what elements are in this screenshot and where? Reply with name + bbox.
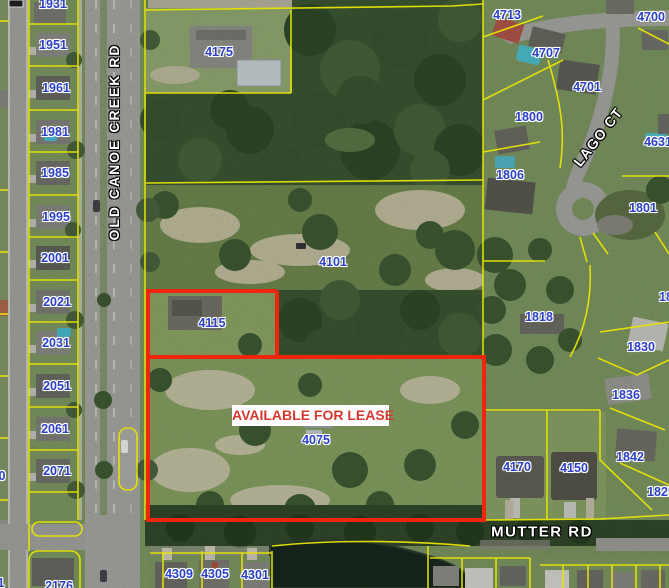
parcel-label-1951: 1951	[39, 38, 67, 52]
parcel-label-4175: 4175	[205, 45, 233, 59]
aerial-parcel-map: 1931195119611981198519952001202120312051…	[0, 0, 669, 588]
parcel-label-4713: 4713	[493, 8, 521, 22]
parcel-label-4301: 4301	[241, 568, 269, 582]
parcel-label-1836: 1836	[612, 388, 640, 402]
parcel-label-4305: 4305	[201, 567, 229, 581]
parcel-label-4150: 4150	[560, 461, 588, 475]
parcel-label-4700: 4700	[637, 10, 665, 24]
parcel-label-4631: 4631	[644, 135, 669, 149]
parcel-label-2021: 2021	[43, 295, 71, 309]
parcel-label-1825: 1825	[647, 485, 669, 499]
road-label-lago-ct: LAGO CT	[570, 104, 626, 169]
parcel-label-2061: 2061	[41, 422, 69, 436]
parcel-label-1931: 1931	[39, 0, 67, 11]
parcel-label-2051: 2051	[43, 379, 71, 393]
parcel-label-4075: 4075	[302, 433, 330, 447]
parcel-label-2176: 2176	[45, 579, 73, 588]
available-for-lease-banner: AVAILABLE FOR LEASE	[232, 405, 389, 426]
parcel-label-1981: 1981	[41, 125, 69, 139]
parcel-label-4115: 4115	[198, 316, 225, 330]
parcel-label-4707: 4707	[532, 46, 560, 60]
parcel-label-18: 18	[659, 290, 669, 304]
parcel-label-1800: 1800	[515, 110, 543, 124]
parcel-label-2071: 2071	[43, 464, 71, 478]
parcel-label-1818: 1818	[525, 310, 553, 324]
parcel-label-2001: 2001	[41, 251, 69, 265]
road-label-mutter-rd: MUTTER RD	[491, 524, 593, 541]
road-label-old-canoe-creek-rd: OLD CANOE CREEK RD	[106, 43, 122, 240]
parcel-label-4101: 4101	[319, 255, 347, 269]
parcel-label-1830: 1830	[627, 340, 655, 354]
parcel-label-4170: 4170	[503, 460, 531, 474]
parcel-label-0: 0	[0, 469, 5, 483]
parcel-label-4309: 4309	[165, 567, 193, 581]
parcel-label-1995: 1995	[42, 210, 70, 224]
label-layer: 1931195119611981198519952001202120312051…	[0, 0, 669, 588]
parcel-label-2031: 2031	[42, 336, 70, 350]
parcel-label-1: 1	[0, 576, 4, 588]
parcel-label-4701: 4701	[573, 80, 601, 94]
parcel-label-1801: 1801	[629, 201, 657, 215]
parcel-label-1842: 1842	[616, 450, 644, 464]
parcel-label-1961: 1961	[42, 81, 70, 95]
parcel-label-1806: 1806	[496, 168, 524, 182]
parcel-label-1985: 1985	[41, 166, 69, 180]
